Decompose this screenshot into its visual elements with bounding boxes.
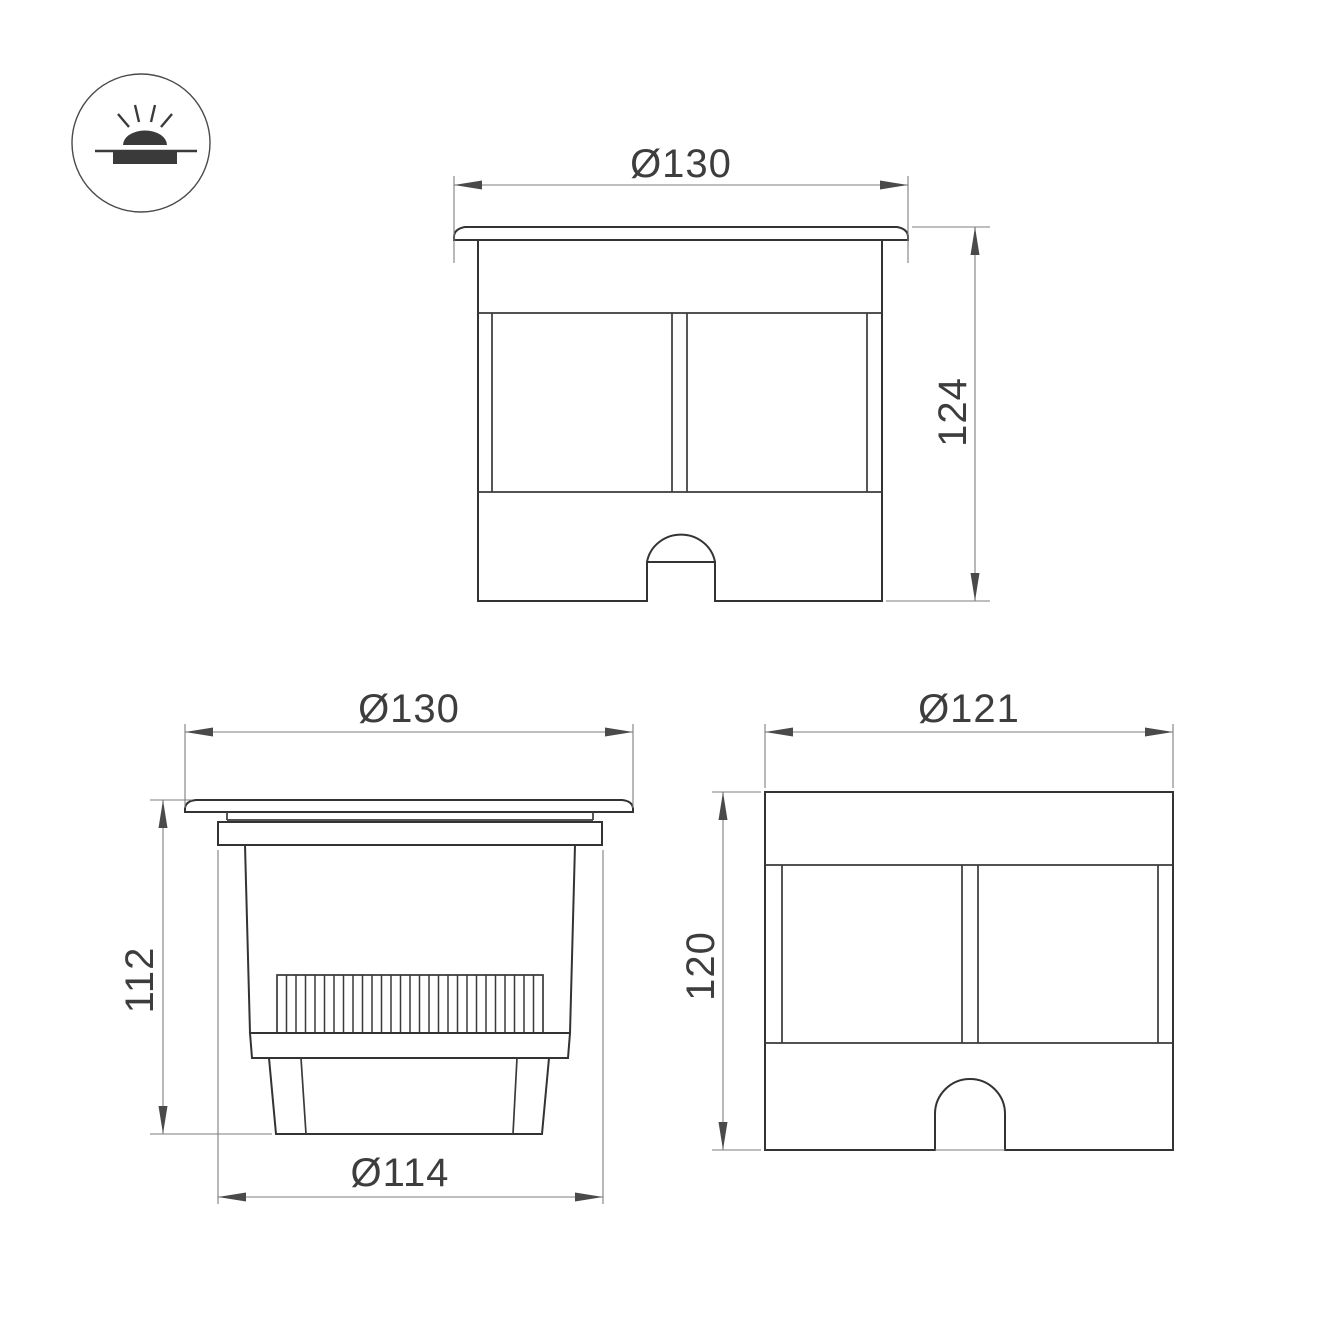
front-height-dim-label: 124 <box>931 377 975 447</box>
side-lower-bucket-inner-walls <box>301 1058 517 1134</box>
icon-dome <box>123 131 167 146</box>
front-width-extension-lines <box>454 176 908 263</box>
technical-drawing-canvas: Ø130 124 Ø130 112 Ø114 <box>0 0 1331 1331</box>
icon-body-rect <box>113 152 177 164</box>
rear-window-mullions <box>782 865 1158 1043</box>
side-section-view: Ø130 112 Ø114 <box>118 687 633 1204</box>
side-mounting-plate <box>250 1033 570 1058</box>
front-flange-outline <box>454 227 908 240</box>
side-collar-outline <box>218 822 602 845</box>
side-height-extension-lines <box>150 800 272 1134</box>
side-heatsink-fins <box>287 975 534 1033</box>
side-flange-neck <box>227 812 593 820</box>
side-flange-outline <box>185 800 633 812</box>
rear-width-dim-label: Ø121 <box>918 687 1020 731</box>
side-width-dim-label: Ø130 <box>358 687 460 731</box>
rear-view: Ø121 120 <box>679 687 1173 1150</box>
front-window-mullions <box>492 313 867 492</box>
rear-width-extension-lines <box>765 724 1173 788</box>
recessed-ground-light-icon <box>72 74 210 212</box>
rear-window-band-lines <box>765 865 1173 1043</box>
icon-light-rays <box>118 105 172 127</box>
front-body-outline <box>478 240 882 601</box>
dimensional-drawing: Ø130 124 Ø130 112 Ø114 <box>0 0 1331 1331</box>
side-width-extension-lines <box>185 724 633 808</box>
side-height-dim-label: 112 <box>118 947 162 1014</box>
side-base-dim-label: Ø114 <box>351 1151 450 1195</box>
rear-height-dim-label: 120 <box>679 931 723 1001</box>
front-width-dim-label: Ø130 <box>630 142 732 186</box>
front-cable-arch <box>647 535 715 562</box>
side-lower-bucket-outline <box>269 1058 549 1134</box>
front-window-band-lines <box>478 313 882 492</box>
rear-body-outline <box>765 792 1173 1150</box>
front-view: Ø130 124 <box>454 142 990 601</box>
